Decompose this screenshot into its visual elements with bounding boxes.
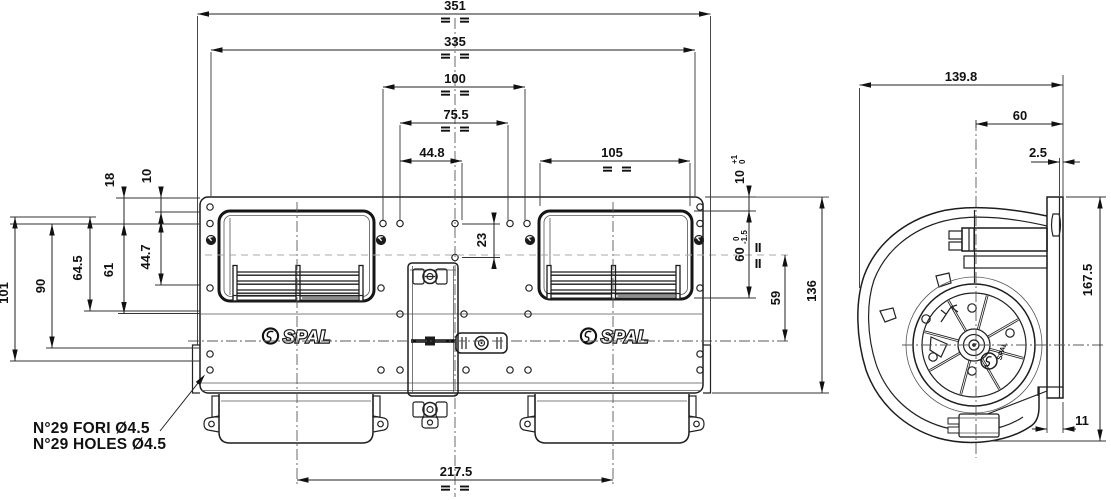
svg-text:335: 335 (444, 34, 466, 49)
svg-text:167.5: 167.5 (1080, 264, 1095, 297)
svg-text:217.5: 217.5 (440, 464, 473, 479)
svg-text:N°29 FORI Ø4.5: N°29 FORI Ø4.5 (33, 420, 150, 437)
svg-text:SPAL: SPAL (601, 327, 649, 347)
svg-text:90: 90 (33, 279, 48, 293)
svg-text:23: 23 (474, 233, 489, 247)
svg-text:10: 10 (139, 169, 154, 183)
svg-text:2.5: 2.5 (1029, 145, 1047, 160)
svg-text:60: 60 (1013, 108, 1027, 123)
svg-text:-1.5: -1.5 (740, 230, 749, 244)
svg-text:101: 101 (0, 282, 11, 304)
svg-text:61: 61 (101, 263, 116, 277)
svg-text:44.7: 44.7 (138, 244, 153, 269)
svg-text:139.8: 139.8 (945, 69, 978, 84)
svg-text:11: 11 (1075, 413, 1089, 428)
svg-text:351: 351 (444, 0, 466, 13)
svg-text:136: 136 (804, 280, 819, 302)
svg-text:60: 60 (732, 247, 747, 261)
svg-text:59: 59 (768, 291, 783, 305)
svg-text:18: 18 (102, 173, 117, 187)
svg-text:64.5: 64.5 (70, 255, 85, 280)
svg-text:44.8: 44.8 (419, 145, 444, 160)
svg-text:75.5: 75.5 (443, 107, 468, 122)
svg-text:10: 10 (733, 170, 747, 184)
svg-text:SPAL: SPAL (283, 327, 331, 347)
svg-text:0: 0 (738, 159, 747, 164)
svg-text:105: 105 (601, 145, 623, 160)
svg-text:100: 100 (444, 71, 466, 86)
svg-text:N°29 HOLES Ø4.5: N°29 HOLES Ø4.5 (33, 436, 166, 453)
